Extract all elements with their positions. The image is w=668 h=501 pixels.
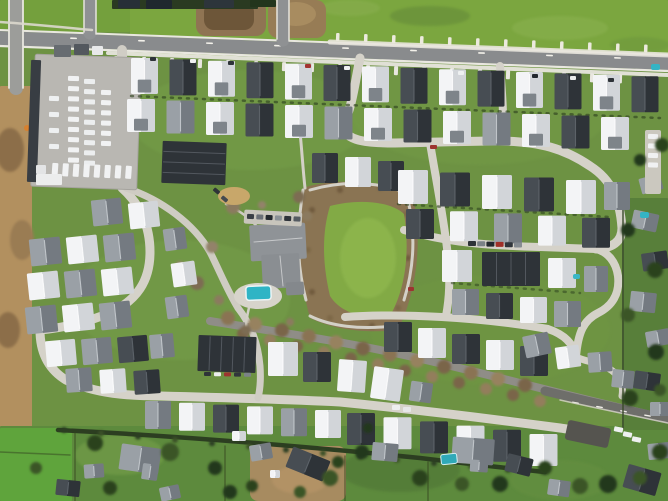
roof-garage-gable	[215, 82, 229, 95]
white-car	[392, 405, 400, 410]
lane-dash	[70, 37, 77, 39]
mature-tree	[622, 390, 638, 406]
clubhouse-annex	[286, 282, 305, 296]
caravan-row-south	[73, 164, 80, 177]
roof-garage-gable	[523, 94, 537, 107]
mature-tree	[30, 462, 42, 474]
field-mottle	[320, 0, 380, 16]
fence-post	[560, 41, 564, 49]
hedge-shrub	[61, 427, 67, 433]
hedge-shrub	[431, 460, 437, 466]
mature-tree	[634, 154, 646, 166]
street-tree-bare	[426, 371, 438, 383]
backyard-pool	[651, 64, 660, 70]
caravan	[68, 147, 79, 152]
mature-tree	[455, 477, 469, 491]
mature-tree	[332, 456, 344, 468]
caravan	[84, 89, 95, 94]
hedge-shrub	[172, 437, 178, 443]
red-car	[408, 287, 414, 291]
mature-tree	[633, 471, 647, 485]
mature-tree	[652, 444, 668, 460]
street-tree-bare	[480, 383, 492, 395]
scrub-texture	[309, 289, 315, 295]
townhouse-block-south	[197, 335, 256, 373]
storage-office-c	[92, 46, 103, 55]
driveway-car	[190, 59, 196, 63]
caravan	[68, 157, 79, 162]
driveway-car	[608, 78, 614, 82]
mature-tree	[654, 384, 666, 396]
storage-office-south-2	[36, 165, 46, 174]
caravan	[101, 141, 111, 146]
roof-garage-gable	[292, 85, 306, 98]
street-parked-cars	[477, 241, 485, 246]
mature-tree	[87, 435, 103, 451]
hedge-shrub	[283, 447, 289, 453]
driveway-stub	[394, 66, 398, 75]
caravan	[101, 110, 111, 115]
park-tree-bare	[258, 201, 266, 209]
lane-dash	[478, 52, 485, 54]
roof-garage-gable	[450, 131, 464, 143]
mature-tree	[572, 478, 588, 494]
parked-car	[275, 215, 282, 220]
mature-tree	[412, 470, 428, 486]
lane-dash	[342, 47, 349, 49]
mature-tree	[363, 423, 373, 433]
caravan	[49, 128, 59, 133]
scrub-texture	[395, 305, 401, 311]
fence-post	[448, 37, 452, 45]
lane-dash	[410, 50, 417, 52]
field-mottle	[512, 16, 608, 40]
caravan	[84, 120, 95, 125]
mature-tree	[103, 481, 117, 495]
parked-car	[284, 216, 291, 221]
driveway-car	[228, 61, 234, 65]
street-tree-bare	[534, 395, 546, 407]
street-parked-cars	[234, 373, 241, 377]
top-building	[118, 0, 140, 8]
park-tree-bare	[286, 318, 294, 326]
caravan	[101, 90, 111, 95]
mature-tree	[294, 486, 306, 498]
caravan	[68, 106, 79, 111]
caravan	[84, 109, 95, 114]
old-house	[650, 402, 668, 416]
caravan	[68, 86, 79, 91]
hedge-shrub	[209, 440, 215, 446]
street-parked-cars	[214, 372, 221, 376]
caravan	[84, 150, 95, 155]
aerial-photo-suburb	[0, 0, 668, 501]
parked-car	[293, 216, 300, 221]
caravan	[101, 100, 111, 105]
mature-tree	[599, 475, 617, 493]
caravan	[49, 112, 59, 117]
parked-car	[247, 214, 254, 219]
mature-tree	[161, 443, 179, 461]
roof-garage-gable	[134, 119, 148, 131]
caravan	[49, 96, 59, 101]
fence-post	[476, 38, 480, 46]
caravan-row-south	[62, 163, 69, 176]
mature-tree	[246, 480, 258, 492]
mature-tree	[538, 461, 552, 475]
street-tree-bare	[356, 342, 370, 356]
storage-office-a	[54, 45, 71, 57]
driveway-stub	[506, 70, 510, 79]
caravan	[68, 117, 79, 122]
street-parked-cars	[244, 373, 251, 377]
parked-car	[265, 215, 272, 220]
fence-post	[532, 40, 536, 48]
driveway-car	[150, 57, 156, 61]
driveway-stub	[198, 59, 202, 68]
mature-tree	[355, 445, 369, 459]
scrub-texture	[327, 315, 333, 321]
caravan	[84, 99, 95, 104]
fence-post	[504, 39, 508, 47]
red-car	[430, 145, 437, 149]
roof-ridge	[94, 466, 95, 476]
mature-tree	[647, 262, 663, 278]
caravan	[49, 144, 59, 149]
roof-garage-gable	[529, 134, 543, 146]
fence-post	[420, 36, 424, 44]
fence-post	[588, 42, 592, 50]
driveway-car	[570, 76, 576, 80]
meadow-grass-light	[340, 218, 396, 298]
fence-post	[616, 43, 620, 51]
caravan	[84, 79, 95, 84]
caravan-row-south	[94, 164, 101, 177]
mature-tree	[223, 485, 237, 499]
mature-tree	[322, 470, 338, 486]
driveway-car	[420, 69, 426, 73]
aerial-scene-canvas	[0, 0, 668, 501]
caravan-row-south	[104, 165, 111, 178]
roof-garage-gable	[213, 122, 227, 134]
street-tree-bare	[221, 311, 235, 325]
parked-car	[256, 214, 263, 219]
fence-post	[364, 34, 368, 42]
top-building	[204, 0, 234, 8]
caravan-row-south	[125, 166, 132, 179]
roof-ridge	[479, 462, 480, 470]
swimming-pool	[246, 286, 271, 301]
park-tree-bare	[214, 295, 224, 305]
park-tree-bare	[293, 191, 305, 203]
street-parked-cars	[505, 242, 513, 247]
scrub-texture	[337, 187, 343, 193]
street-parked-cars	[496, 242, 504, 247]
street-tree-bare	[302, 329, 316, 343]
street-tree-bare	[329, 335, 343, 349]
caravan	[68, 137, 79, 142]
field-mottle	[390, 6, 470, 26]
park-tree-bare	[302, 211, 312, 221]
top-hedge-block	[250, 0, 276, 7]
mature-tree	[648, 344, 664, 360]
hedge-shrub	[320, 450, 326, 456]
street-parked-cars	[204, 372, 211, 376]
caravan-row-south	[83, 164, 90, 177]
roof-garage-gable	[600, 96, 614, 109]
fence-post	[336, 33, 340, 41]
caravan	[68, 127, 79, 132]
street-tree-bare	[507, 389, 519, 401]
roof-garage-gable	[292, 125, 306, 137]
storage-office-south	[36, 174, 62, 185]
caravan	[101, 131, 111, 136]
hedge-shrub	[135, 434, 141, 440]
caravan-row-south	[115, 165, 122, 178]
backyard-pool	[640, 212, 649, 218]
caravan	[68, 76, 79, 81]
lane-dash	[138, 40, 145, 42]
street-tree-bare	[518, 378, 532, 392]
street-parked-cars	[468, 241, 476, 246]
street-tree-bare	[491, 372, 505, 386]
caravan	[648, 162, 658, 167]
caravan	[84, 140, 95, 145]
roof-garage-gable	[608, 137, 622, 149]
lane-dash	[614, 57, 621, 59]
caravan	[648, 153, 658, 158]
caravan	[68, 96, 79, 101]
park-tree-bare	[206, 241, 218, 253]
lane-dash	[546, 55, 553, 57]
driveway-car	[344, 66, 350, 70]
fence-post	[644, 44, 648, 52]
roof-garage-gable	[446, 91, 460, 104]
caravan	[648, 134, 658, 139]
street-tree-bare	[275, 323, 289, 337]
street-tree-bare	[464, 366, 478, 380]
backyard-pool	[441, 453, 458, 465]
white-car	[403, 407, 411, 412]
roof-garage-gable	[371, 128, 385, 140]
park-tree-bare	[241, 325, 251, 335]
fence-post	[392, 35, 396, 43]
mature-tree	[621, 308, 635, 322]
hedge-shrub	[98, 430, 104, 436]
mature-tree	[208, 461, 222, 475]
driveway-car	[458, 71, 464, 75]
caravan	[84, 130, 95, 135]
street-parked-cars	[514, 243, 522, 248]
roof-garage-gable	[369, 88, 383, 101]
street-tree-bare	[453, 377, 465, 389]
driveway-car	[305, 64, 311, 68]
storage-office-b	[74, 44, 89, 55]
street-parked-cars	[486, 242, 494, 247]
mature-tree	[621, 223, 635, 237]
roof-garage-gable	[138, 80, 152, 93]
lane-dash	[206, 42, 213, 44]
street-parked-cars	[224, 372, 231, 376]
top-building	[146, 0, 172, 9]
mature-tree	[492, 476, 508, 492]
caravan	[101, 120, 111, 125]
street-tree-bare	[437, 360, 451, 374]
driveway-car	[532, 74, 538, 78]
backyard-pool	[573, 274, 580, 279]
